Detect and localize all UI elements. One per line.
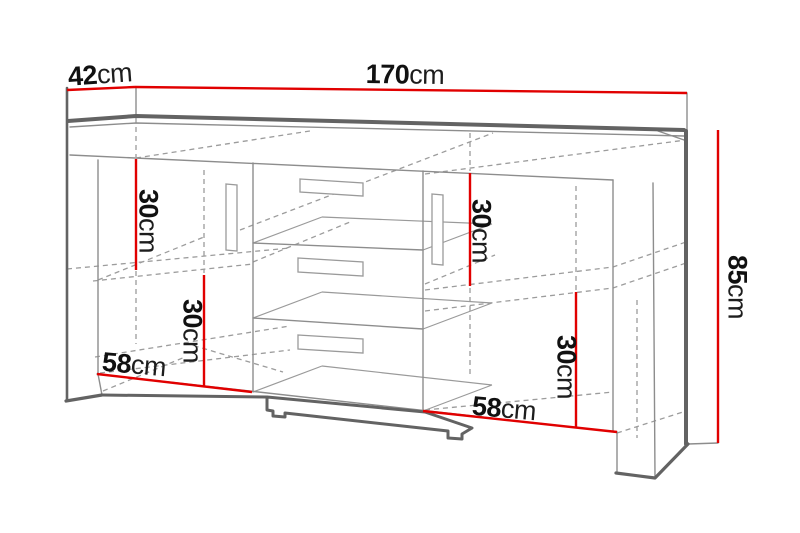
dim-value: 30: [178, 299, 208, 328]
dim-value: 30: [552, 335, 582, 364]
dim-value: 170: [366, 59, 410, 90]
dimension-lines: [67, 87, 718, 443]
handles: [226, 179, 443, 353]
dim-unit: cm: [723, 284, 753, 319]
dim-value: 30: [134, 189, 164, 218]
dim-value: 85: [723, 255, 753, 284]
dim-label-30-left-upper: 30cm: [135, 189, 162, 253]
dim-label-height: 85cm: [724, 255, 751, 319]
dim-unit: cm: [552, 364, 582, 399]
plinth-outline: [267, 397, 472, 439]
diagram-canvas: 170cm 42cm 85cm 30cm 30cm 30cm 30cm 58cm…: [0, 0, 800, 533]
dim-label-58-left: 58cm: [101, 349, 167, 381]
dim-unit: cm: [134, 218, 164, 253]
dim-value: 58: [101, 347, 133, 379]
dim-value: 30: [467, 199, 497, 228]
dim-label-58-right: 58cm: [471, 393, 537, 425]
drawer-2-handle: [298, 258, 363, 276]
base-recess-edge: [102, 395, 266, 397]
dim-value: 42: [67, 60, 98, 92]
left-foot-bottom-edge: [66, 395, 102, 401]
dim-label-depth: 42cm: [67, 59, 133, 90]
dim-unit: cm: [130, 349, 167, 382]
drawer-3-handle: [298, 335, 363, 353]
dim-unit: cm: [409, 60, 444, 90]
dim-label-30-right-lower: 30cm: [553, 335, 580, 399]
right-door-handle: [432, 194, 443, 265]
drawer-shelf-edges: [253, 217, 492, 411]
carcass-thick-outline: [66, 88, 688, 478]
dim-label-30-right-upper: 30cm: [468, 199, 495, 263]
right-foot-outline: [616, 444, 688, 478]
left-door-handle: [226, 184, 237, 251]
dim-unit: cm: [500, 393, 537, 426]
dim-unit: cm: [467, 228, 497, 263]
dim-label-width: 170cm: [366, 61, 445, 89]
dim-label-30-left-lower: 30cm: [179, 299, 206, 363]
dim-unit: cm: [96, 57, 133, 89]
dim-value: 58: [471, 391, 503, 423]
hidden-edges-dashed: [67, 118, 686, 438]
drawer-1-handle: [300, 179, 363, 196]
dim-unit: cm: [178, 328, 208, 363]
